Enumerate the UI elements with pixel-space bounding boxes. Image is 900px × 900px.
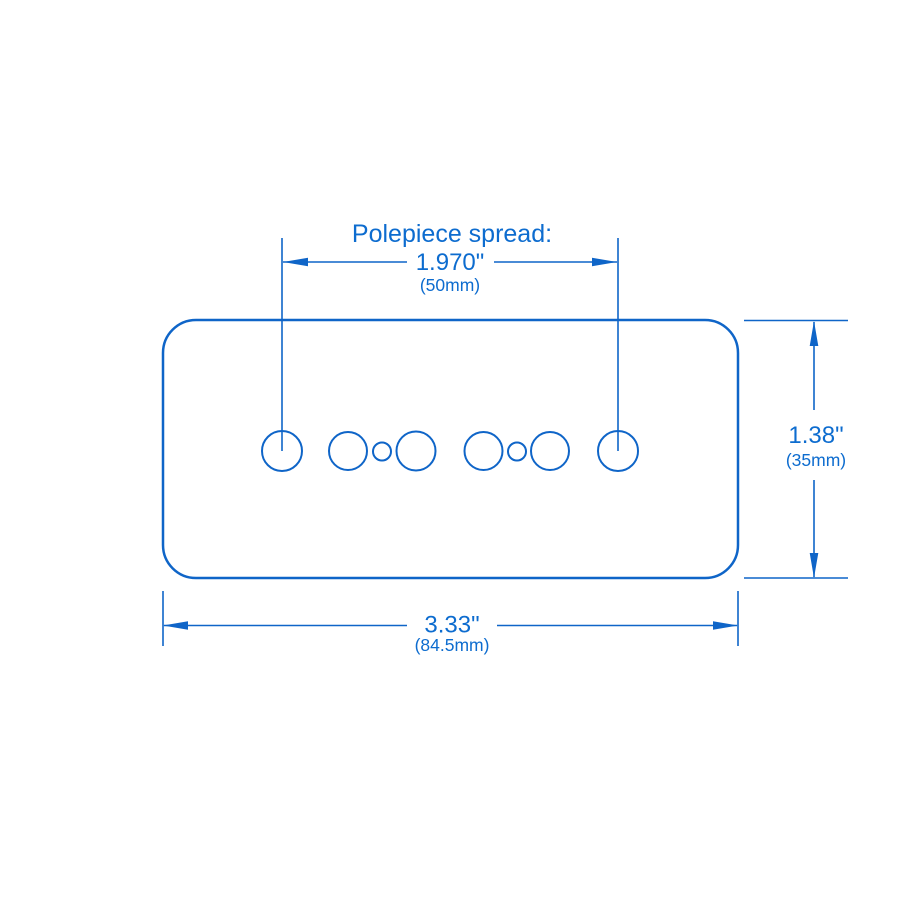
polepiece-spread-title: Polepiece spread: [352, 220, 552, 248]
polepiece-spread-metric: (50mm) [420, 275, 480, 295]
polepiece-spread-inches: 1.970" [416, 249, 485, 276]
arrowhead-up-icon [810, 321, 819, 346]
cover-width-dimension: 3.33" (84.5mm) [163, 591, 738, 655]
polepiece-hole-3 [397, 432, 436, 471]
cover-height-dimension: 1.38" (35mm) [744, 321, 848, 579]
pickup-cover-outline [163, 320, 738, 578]
diagram-svg: Polepiece spread: 1.970" (50mm) 1.38" (3… [0, 0, 900, 900]
pickup-cover-dimension-diagram: Polepiece spread: 1.970" (50mm) 1.38" (3… [0, 0, 900, 900]
cover-height-metric: (35mm) [786, 450, 846, 470]
mounting-screw-hole-2 [508, 443, 526, 461]
polepiece-hole-4 [465, 432, 503, 470]
polepiece-hole-2 [329, 432, 367, 470]
pickup-cover [163, 320, 738, 578]
polepiece-spread-dimension: Polepiece spread: 1.970" (50mm) [282, 220, 618, 451]
arrowhead-left-icon [283, 258, 308, 267]
arrowhead-right-icon [713, 621, 738, 630]
cover-width-metric: (84.5mm) [415, 635, 490, 655]
mounting-screw-hole-1 [373, 443, 391, 461]
arrowhead-down-icon [810, 553, 819, 578]
cover-height-inches: 1.38" [788, 422, 843, 449]
polepiece-hole-5 [531, 432, 569, 470]
arrowhead-left-icon [163, 621, 188, 630]
arrowhead-right-icon [592, 258, 617, 267]
